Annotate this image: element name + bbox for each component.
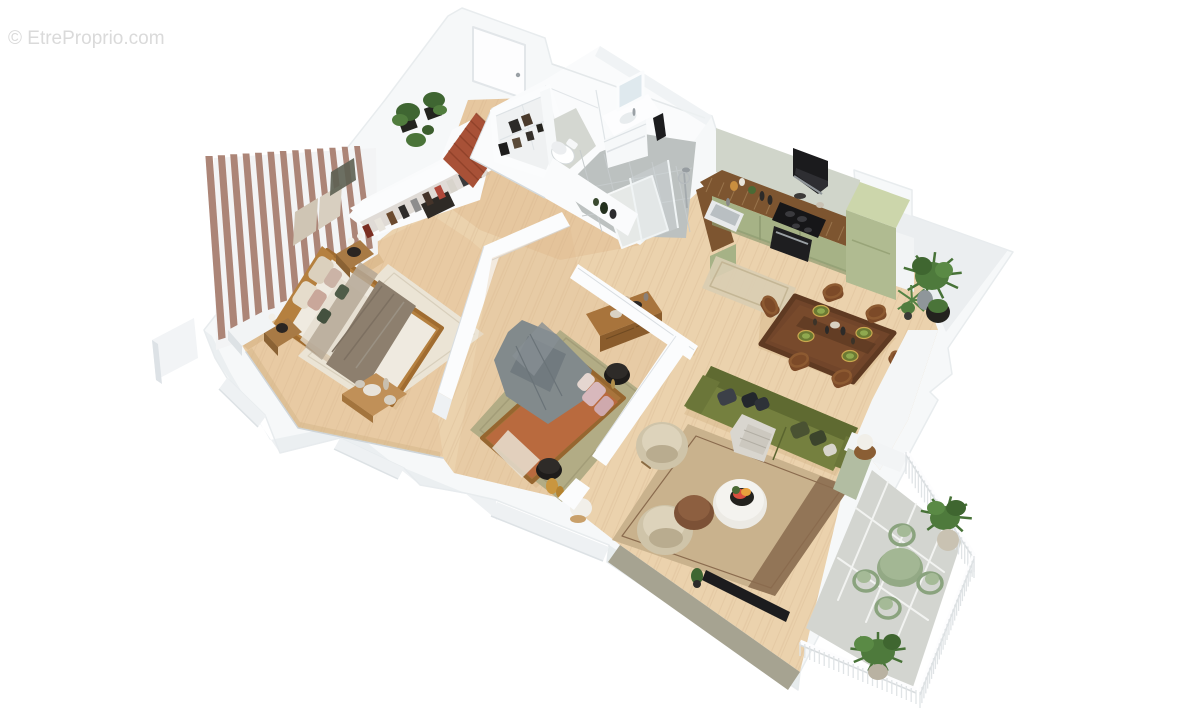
svg-text:© EtreProprio.com: © EtreProprio.com xyxy=(8,28,165,49)
